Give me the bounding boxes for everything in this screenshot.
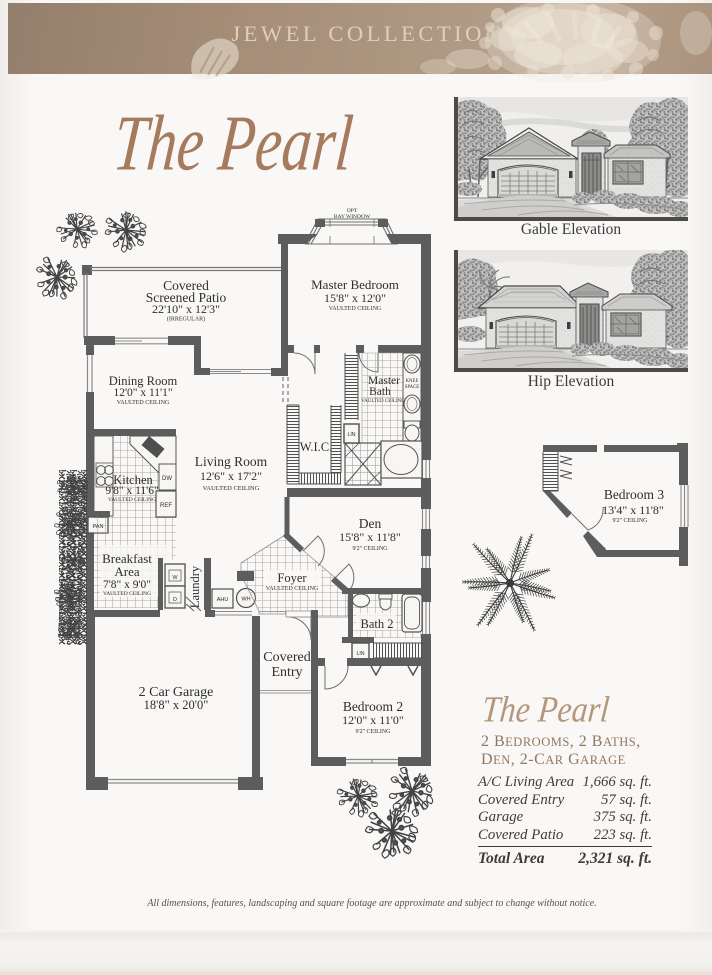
svg-text:15'8" x 11'8": 15'8" x 11'8": [339, 530, 401, 544]
svg-text:REF: REF: [160, 503, 172, 509]
svg-text:VAULTED CEILING: VAULTED CEILING: [117, 400, 170, 406]
svg-text:SPACE: SPACE: [405, 385, 420, 390]
svg-text:WH: WH: [241, 597, 250, 603]
svg-text:Dining Room: Dining Room: [109, 374, 178, 388]
svg-text:Bedroom 2: Bedroom 2: [343, 699, 403, 714]
svg-text:AHU: AHU: [217, 597, 229, 603]
svg-text:12'0" x 11'0": 12'0" x 11'0": [342, 713, 404, 727]
svg-text:W.I.C.: W.I.C.: [300, 440, 333, 454]
svg-text:BAY WINDOW: BAY WINDOW: [334, 214, 371, 220]
svg-text:12'0" x 11'1": 12'0" x 11'1": [113, 387, 172, 399]
svg-text:Bath 2: Bath 2: [361, 617, 394, 631]
svg-text:12'6" x 17'2": 12'6" x 17'2": [200, 469, 262, 483]
svg-text:Laundry: Laundry: [188, 565, 202, 608]
svg-text:13'4" x 11'8": 13'4" x 11'8": [602, 503, 664, 517]
svg-text:7'8" x 9'0": 7'8" x 9'0": [103, 579, 151, 591]
svg-text:(IRREGULAR): (IRREGULAR): [167, 316, 205, 323]
svg-text:18'8" x 20'0": 18'8" x 20'0": [144, 698, 209, 712]
svg-text:9'2" CEILING: 9'2" CEILING: [612, 518, 648, 524]
svg-text:D: D: [173, 597, 177, 603]
svg-text:VAULTED CEILING: VAULTED CEILING: [103, 591, 151, 597]
svg-text:VAULTED CEILING: VAULTED CEILING: [108, 497, 156, 503]
svg-text:KNEE: KNEE: [406, 379, 419, 384]
svg-text:Master Bedroom: Master Bedroom: [311, 277, 399, 292]
svg-text:DW: DW: [162, 476, 172, 482]
svg-text:LIN: LIN: [347, 432, 355, 438]
svg-text:VAULTED CEILING: VAULTED CEILING: [329, 306, 382, 312]
svg-text:15'8" x 12'0": 15'8" x 12'0": [324, 291, 386, 305]
svg-text:VAULTED CEILING: VAULTED CEILING: [361, 399, 405, 404]
svg-text:Covered: Covered: [263, 650, 310, 665]
svg-text:LIN: LIN: [356, 651, 364, 657]
svg-text:Den: Den: [359, 516, 382, 531]
svg-text:Bedroom 3: Bedroom 3: [604, 487, 665, 502]
svg-text:9'8" x 11'6": 9'8" x 11'6": [105, 485, 158, 497]
svg-text:VAULTED CEILING: VAULTED CEILING: [266, 586, 319, 592]
svg-text:9'2" CEILING: 9'2" CEILING: [355, 729, 391, 735]
svg-text:22'10" x 12'3": 22'10" x 12'3": [152, 302, 220, 316]
svg-text:Bath: Bath: [369, 386, 391, 398]
svg-text:VAULTED CEILING: VAULTED CEILING: [203, 485, 260, 492]
svg-text:Entry: Entry: [271, 665, 302, 680]
svg-text:W: W: [172, 575, 178, 581]
svg-text:Foyer: Foyer: [277, 571, 307, 585]
svg-text:9'2" CEILING: 9'2" CEILING: [352, 546, 388, 552]
svg-text:Area: Area: [114, 564, 139, 579]
svg-text:Living Room: Living Room: [195, 454, 268, 469]
